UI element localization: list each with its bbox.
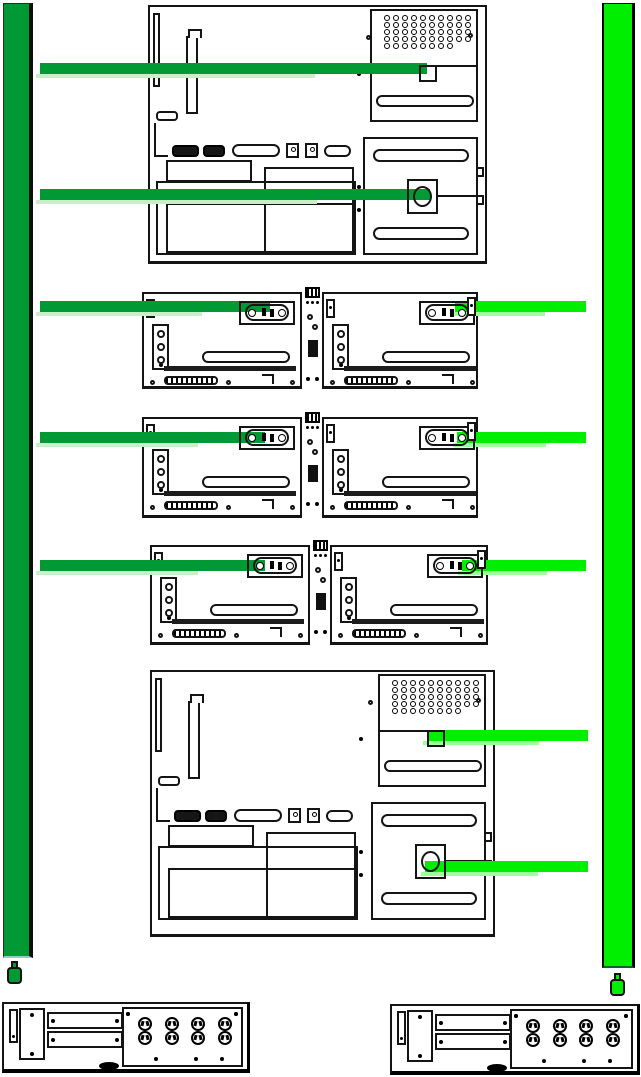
fan-hole <box>384 29 390 35</box>
row1-right-node <box>322 292 478 389</box>
screw-icon <box>298 633 303 638</box>
rack-power-cabling-diagram <box>0 0 641 1077</box>
screw-icon <box>154 1057 158 1061</box>
cable-clip <box>262 499 274 509</box>
port-pin <box>310 147 315 152</box>
fan-hole <box>411 29 417 35</box>
mounting-bracket <box>397 1011 406 1045</box>
power-outlet <box>553 1033 567 1047</box>
scsi-connector <box>344 501 398 510</box>
screw-icon <box>406 505 411 510</box>
connector-column <box>152 449 169 495</box>
fan-hole <box>465 22 471 28</box>
outlet-panel-right <box>390 1004 640 1075</box>
fan-hole <box>384 22 390 28</box>
port-pin <box>312 812 317 817</box>
power-cable-a-row2-left-node <box>40 432 265 443</box>
screw-icon <box>126 1012 130 1016</box>
psu2-handle-slot <box>381 892 477 905</box>
scsi-connector <box>172 629 226 638</box>
fan-hole <box>393 22 399 28</box>
fan-hole <box>437 694 443 700</box>
outlet-section <box>510 1009 633 1069</box>
scsi-connector <box>344 376 398 385</box>
screw-icon <box>51 1019 55 1023</box>
fan-hole <box>392 701 398 707</box>
round-port <box>165 583 173 591</box>
round-port <box>157 343 165 351</box>
screw-icon <box>307 314 313 320</box>
blank-slot <box>435 1014 511 1031</box>
fan-hole <box>464 680 470 686</box>
serial-port <box>205 810 227 822</box>
screw-icon <box>476 698 481 703</box>
inlet-pins <box>442 433 446 441</box>
power-outlet <box>218 1017 232 1031</box>
chassis-clip <box>476 195 484 205</box>
serial-port <box>174 810 201 822</box>
io-port-row <box>172 144 354 160</box>
power-outlet <box>191 1031 205 1045</box>
cable-clip <box>262 374 274 384</box>
inlet-pins <box>262 433 266 441</box>
fan-grille <box>370 9 478 67</box>
screw-icon <box>226 505 231 510</box>
screw-icon <box>158 633 163 638</box>
screw-icon <box>314 630 318 634</box>
screw-icon <box>312 449 318 455</box>
fan-hole <box>410 694 416 700</box>
panel-seam <box>352 619 484 624</box>
screw-icon <box>582 1059 586 1063</box>
rear-panel-box <box>166 203 354 253</box>
cable-clip <box>442 499 454 509</box>
round-port <box>345 609 353 617</box>
scsi-connector <box>164 376 218 385</box>
round-port <box>157 330 165 338</box>
fan-hole <box>473 680 479 686</box>
node-power-inlet <box>245 429 289 446</box>
center-connector <box>308 340 318 357</box>
fan-hole <box>401 694 407 700</box>
fan-hole <box>473 687 479 693</box>
blank-slot <box>47 1012 123 1029</box>
fan-hole <box>438 15 444 21</box>
inlet-pins <box>450 561 454 569</box>
screw-icon <box>624 1014 628 1018</box>
fan-hole <box>393 15 399 21</box>
fan-hole <box>447 15 453 21</box>
fan-hole <box>411 15 417 21</box>
screw-icon <box>150 380 155 385</box>
fan-hole <box>401 701 407 707</box>
power-cable-b-bottom-server-psu2 <box>425 861 588 872</box>
fan-hole <box>410 687 416 693</box>
center-connector <box>316 593 326 610</box>
row3-right-node <box>330 545 488 645</box>
screw-icon <box>30 1013 34 1017</box>
node-power-inlet <box>425 304 469 321</box>
fan-hole <box>447 22 453 28</box>
connector-column <box>152 324 169 370</box>
screw-icon <box>51 1038 55 1042</box>
fan-hole <box>456 29 462 35</box>
fan-hole <box>401 687 407 693</box>
fan-hole <box>401 708 407 714</box>
power-outlet <box>191 1017 205 1031</box>
fan-hole <box>411 43 417 49</box>
screw-icon <box>439 1021 443 1025</box>
round-port <box>165 596 173 604</box>
usb-port <box>307 808 320 823</box>
psu2-handle-slot <box>373 227 469 240</box>
fan-hole <box>446 680 452 686</box>
round-port <box>337 468 345 476</box>
fan-hole <box>419 708 425 714</box>
row3-center-divider <box>308 545 332 645</box>
screw-icon <box>312 324 318 330</box>
panel-seam <box>344 366 476 371</box>
fan-hole <box>410 701 416 707</box>
fan-hole <box>455 680 461 686</box>
screw-icon <box>414 633 419 638</box>
bottom-server-rear <box>150 670 495 937</box>
screw-icon <box>330 380 335 385</box>
rear-panel-box <box>166 160 252 182</box>
pci-slot <box>188 701 200 779</box>
io-port-row <box>174 809 356 825</box>
fan-hole <box>464 694 470 700</box>
center-vent <box>313 540 328 551</box>
fan-hole <box>410 708 416 714</box>
mounting-bracket <box>326 424 335 443</box>
fan-hole <box>438 22 444 28</box>
rear-panel-box <box>168 868 356 918</box>
screw-icon <box>30 1052 34 1056</box>
latch-wire <box>437 195 479 197</box>
plug-body <box>7 967 22 984</box>
screw-icon <box>290 505 295 510</box>
wide-port <box>232 144 280 157</box>
fan-hole <box>428 694 434 700</box>
screw-icon <box>337 559 340 562</box>
fan-hole <box>393 36 399 42</box>
screw-icon <box>306 377 310 381</box>
screw-icon <box>320 577 326 583</box>
chassis-clip <box>476 167 484 177</box>
round-port <box>157 468 165 476</box>
screw-icon <box>329 306 332 309</box>
center-connector <box>308 465 318 482</box>
fan-hole <box>428 708 434 714</box>
riser-slot <box>202 476 290 488</box>
fan-hole <box>392 687 398 693</box>
fan-hole <box>446 701 452 707</box>
led-dots <box>306 301 309 304</box>
psu2-inlet-socket <box>413 186 432 207</box>
row1-center-divider <box>300 292 324 389</box>
screw-icon <box>307 439 313 445</box>
fan-hole <box>447 43 453 49</box>
led-dots <box>306 426 309 429</box>
psu2-handle-slot <box>373 149 469 162</box>
fan-hole <box>438 29 444 35</box>
usb-port <box>305 143 318 158</box>
screw-icon <box>150 505 155 510</box>
blank-slot <box>435 1033 511 1050</box>
screw-icon <box>470 304 473 307</box>
side-connector <box>158 776 180 786</box>
fan-hole <box>392 708 398 714</box>
riser-slot <box>202 351 290 363</box>
fan-hole <box>392 694 398 700</box>
cable-clip <box>442 374 454 384</box>
fan-hole <box>446 708 452 714</box>
psu1-power-inlet <box>427 730 445 747</box>
inlet-pins <box>270 561 274 569</box>
fan-hole <box>429 29 435 35</box>
mounting-bracket <box>334 552 343 571</box>
power-outlet <box>165 1017 179 1031</box>
power-outlet <box>138 1017 152 1031</box>
connector-column <box>332 449 349 495</box>
power-cable-a-row1-left-node <box>40 301 270 312</box>
screw-icon <box>480 557 483 560</box>
fan-hole <box>402 43 408 49</box>
fan-hole <box>455 701 461 707</box>
blank-slot <box>47 1031 123 1048</box>
screw-icon <box>359 737 363 741</box>
power-cable-a-row3-left-node <box>40 560 265 571</box>
fan-hole <box>438 36 444 42</box>
power-cable-a-top-server-psu2 <box>40 189 430 200</box>
round-port <box>337 481 345 489</box>
fan-hole <box>393 29 399 35</box>
mounting-bracket <box>9 1009 18 1043</box>
screw-icon <box>514 1014 518 1018</box>
screw-icon <box>470 380 475 385</box>
screw-icon <box>468 33 473 38</box>
fan-hole <box>437 701 443 707</box>
screw-icon <box>418 1054 422 1058</box>
usb-port <box>286 143 299 158</box>
power-outlet <box>526 1019 540 1033</box>
inlet-pins <box>442 308 446 316</box>
power-plug-b-icon <box>610 973 625 998</box>
fan-hole <box>420 29 426 35</box>
screw-icon <box>503 1021 507 1025</box>
fan-hole <box>429 36 435 42</box>
serial-port <box>172 145 199 157</box>
center-vent <box>305 412 320 423</box>
center-vent <box>305 287 320 298</box>
fan-hole <box>447 36 453 42</box>
fan-hole <box>402 22 408 28</box>
inlet-pins <box>262 308 266 316</box>
scsi-connector <box>164 501 218 510</box>
power-outlet <box>606 1033 620 1047</box>
screw-icon <box>226 380 231 385</box>
screw-icon <box>115 1019 119 1023</box>
outlet-panel-left <box>2 1002 250 1073</box>
screw-icon <box>503 1040 507 1044</box>
fan-hole <box>420 43 426 49</box>
riser-slot <box>210 604 298 616</box>
round-port <box>157 481 165 489</box>
power-cable-a-top-server-psu1 <box>40 63 427 74</box>
usb-port <box>288 808 301 823</box>
video-port <box>326 810 353 822</box>
round-port <box>345 583 353 591</box>
breaker-module <box>407 1010 433 1062</box>
round-port <box>337 330 345 338</box>
power-outlet <box>579 1019 593 1033</box>
fan-hole <box>429 15 435 21</box>
fan-hole <box>402 29 408 35</box>
screw-icon <box>234 1012 238 1016</box>
power-cable-b-bottom-server-psu1 <box>427 730 588 741</box>
power-outlet <box>606 1019 620 1033</box>
riser-slot <box>390 604 478 616</box>
chassis-frame-lip <box>155 678 162 752</box>
fan-hole <box>429 22 435 28</box>
fan-hole <box>465 15 471 21</box>
fan-hole <box>438 43 444 49</box>
psu1-handle-slot <box>384 760 482 772</box>
node-power-inlet <box>425 429 469 446</box>
connector-column <box>340 577 357 623</box>
fan-hole <box>411 36 417 42</box>
port-pin <box>293 812 298 817</box>
screw-icon <box>400 1037 403 1040</box>
connector-column <box>332 324 349 370</box>
screw-icon <box>315 567 321 573</box>
fan-hole <box>464 687 470 693</box>
fan-hole <box>428 687 434 693</box>
side-connector <box>156 111 178 121</box>
fan-hole <box>420 22 426 28</box>
fan-hole <box>456 22 462 28</box>
breaker-module <box>19 1008 45 1060</box>
mounting-bracket <box>326 299 335 318</box>
screw-icon <box>470 429 473 432</box>
screw-icon <box>330 505 335 510</box>
power-outlet <box>579 1033 593 1047</box>
fan-hole <box>446 687 452 693</box>
round-port <box>345 596 353 604</box>
fan-hole <box>437 680 443 686</box>
fan-hole <box>420 36 426 42</box>
fan-hole <box>419 680 425 686</box>
panel-step-line <box>154 123 168 157</box>
screw-icon <box>220 1057 224 1061</box>
screw-icon <box>470 505 475 510</box>
node-power-inlet <box>433 557 477 574</box>
power-outlet <box>218 1031 232 1045</box>
screw-icon <box>115 1038 119 1042</box>
fan-hole <box>447 29 453 35</box>
power-outlet <box>138 1031 152 1045</box>
screw-icon <box>12 1035 15 1038</box>
fan-hole <box>410 680 416 686</box>
panel-seam <box>164 366 296 371</box>
psu2-inlet-socket <box>421 851 440 872</box>
plug-body <box>610 979 625 996</box>
fan-hole <box>455 694 461 700</box>
riser-slot <box>382 476 470 488</box>
label-oval <box>487 1064 507 1072</box>
round-port <box>157 356 165 364</box>
video-port <box>324 145 351 157</box>
scsi-connector <box>352 629 406 638</box>
label-oval <box>99 1062 119 1070</box>
node-power-inlet <box>245 304 289 321</box>
round-port <box>165 609 173 617</box>
fan-hole <box>402 36 408 42</box>
chassis-clip <box>484 832 492 842</box>
panel-seam <box>164 491 296 496</box>
fan-hole <box>437 708 443 714</box>
psu2-handle-slot <box>381 814 477 827</box>
power-outlet <box>165 1031 179 1045</box>
screw-icon <box>194 1057 198 1061</box>
mounting-bracket <box>467 297 476 316</box>
port-pin <box>291 147 296 152</box>
serial-port <box>203 145 225 157</box>
power-plug-a-icon <box>7 961 22 986</box>
screw-icon <box>478 633 483 638</box>
fan-hole <box>428 680 434 686</box>
row2-right-node <box>322 417 478 518</box>
power-cable-b-row2-right-node <box>457 432 586 443</box>
screw-icon <box>542 1059 546 1063</box>
cable-clip <box>270 627 282 637</box>
node-power-inlet <box>253 557 297 574</box>
screw-icon <box>306 502 310 506</box>
screw-icon <box>359 850 363 854</box>
mounting-bracket <box>477 550 486 569</box>
panel-seam <box>344 491 476 496</box>
riser-slot <box>382 351 470 363</box>
power-strip-b <box>602 3 635 968</box>
panel-seam <box>172 619 304 624</box>
fan-hole <box>420 15 426 21</box>
fan-hole <box>393 43 399 49</box>
fan-hole <box>464 701 470 707</box>
top-server-rear <box>148 5 487 264</box>
round-port <box>337 455 345 463</box>
fan-hole <box>411 22 417 28</box>
power-outlet <box>526 1033 540 1047</box>
led-dots <box>314 554 317 557</box>
round-port <box>337 356 345 364</box>
power-outlet <box>553 1019 567 1033</box>
wide-port <box>234 809 282 822</box>
outlet-section <box>122 1007 243 1067</box>
connector-column <box>160 577 177 623</box>
screw-icon <box>290 380 295 385</box>
mounting-bracket <box>467 422 476 441</box>
fan-hole <box>392 680 398 686</box>
fan-hole <box>455 687 461 693</box>
fan-hole <box>401 680 407 686</box>
screw-icon <box>329 431 332 434</box>
fan-hole <box>419 694 425 700</box>
fan-hole <box>419 687 425 693</box>
screw-icon <box>368 700 373 705</box>
panel-step-line <box>156 788 170 822</box>
fan-hole <box>455 708 461 714</box>
